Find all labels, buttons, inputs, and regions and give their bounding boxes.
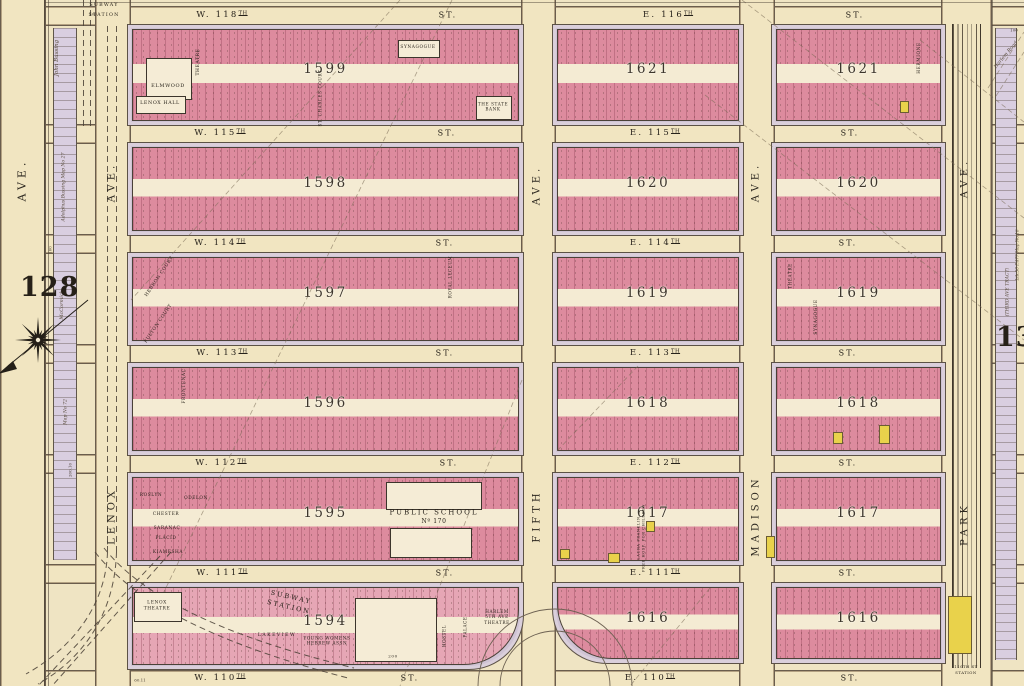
margin-note-harlem-road: Harlem Road [993,40,1019,70]
avenue-label-west-edge-ave-0: AVE. [16,159,29,202]
street-label-east-st-w-114th-e-114th: ST. [839,239,858,248]
plate-number-left: 128 [20,272,79,303]
avenue-label-park-ave-1: PARK [960,502,971,546]
street-label-east-w-118th-e-116th: E. 116TH [643,10,693,20]
ordinal-suffix: TH [671,348,680,354]
street-label-west-w-111th-e-111th: W. 111TH [196,568,247,578]
dimension-label: 100 [1010,28,1018,33]
avenue-label-park-ave-0: AVE. [960,158,971,198]
ordinal-suffix: TH [671,238,680,244]
street-label-east-st-w-118th-e-116th: ST. [846,11,865,20]
ordinal-suffix: TH [238,10,247,16]
ordinal-suffix: TH [236,673,245,679]
park-station-line2: STATION [946,670,986,676]
street-label-east-st-w-113th-e-113th: ST. [839,349,858,358]
street-label-east-st-w-110th-e-110th: ST. [841,674,860,683]
street-label-west-w-110th-e-110th: W. 110TH [194,673,245,683]
margin-note-lib-note: Lib.50 P.477 Map No.16 [1015,230,1020,281]
ordinal-suffix: TH [671,568,680,574]
street-label-east-w-111th-e-111th: E. 111TH [630,568,680,578]
ordinal-suffix: TH [671,458,680,464]
dimension-label: 200.10 [68,463,73,477]
street-label-west-st-w-115th-e-115th: ST. [438,129,457,138]
street-label-west-st-w-112th-e-112th: ST. [440,459,459,468]
street-label-east-w-112th-e-112th: E. 112TH [630,458,680,468]
street-label-east-st-w-112th-e-112th: ST. [839,459,858,468]
street-label-west-st-w-114th-e-114th: ST. [436,239,455,248]
subway-station-line2: STATION [84,11,124,21]
ordinal-suffix: TH [237,458,246,464]
ordinal-suffix: TH [666,673,675,679]
avenue-label-fifth-ave-0: AVE. [532,165,543,205]
street-label-east-st-w-115th-e-115th: ST. [841,129,860,138]
labels-layer: W. 118THST.E. 116THST.W. 115THST.E. 115T… [0,0,1024,686]
street-label-west-st-w-118th-e-116th: ST. [439,11,458,20]
street-label-east-w-115th-e-115th: E. 115TH [630,128,680,138]
street-label-east-st-w-111th-e-111th: ST. [839,569,858,578]
subway-station-line1: SUBWAY [84,1,124,11]
margin-note-john-bussing: John Bussing [54,40,60,76]
margin-note-map-no-72: Map No 72 [64,399,69,425]
street-label-west-w-112th-e-112th: W. 112TH [195,458,246,468]
street-label-east-w-113th-e-113th: E. 113TH [630,348,680,358]
atlas-map-plate: 1599162116211598162016201597161916191596… [0,0,1024,686]
subway-station-label-top: SUBWAY STATION [84,1,124,21]
street-label-west-w-114th-e-114th: W. 114TH [194,238,245,248]
street-label-east-w-114th-e-114th: E. 114TH [630,238,680,248]
ordinal-suffix: TH [684,10,693,16]
avenue-label-madison-ave-0: AVE. [751,162,762,202]
park-ave-station-label: 110TH ST STATION [946,664,986,677]
street-label-west-w-115th-e-115th: W. 115TH [194,128,245,138]
avenue-label-fifth-ave-1: FIFTH [532,489,543,542]
avenue-label-lenox-ave-1: LENOX [107,487,118,545]
avenue-label-madison-ave-1: MADISON [751,475,762,556]
ordinal-suffix: TH [238,568,247,574]
plate-number-right: 130 [996,322,1024,353]
street-label-west-st-w-111th-e-111th: ST. [436,569,455,578]
street-label-west-w-118th-e-116th: W. 118TH [196,10,247,20]
margin-note-third-ave-tract: (THIRD AVE TRACT) [1006,268,1011,317]
ordinal-suffix: TH [236,238,245,244]
street-label-west-w-113th-e-113th: W. 113TH [196,348,247,358]
street-label-west-st-w-110th-e-110th: ST. [401,674,420,683]
ordinal-suffix: TH [671,128,680,134]
street-label-east-w-110th-e-110th: E. 110TH [625,673,675,683]
margin-note-adolphus-bussing: Adolphus Bussing Map No 27 [62,153,67,222]
dimension-label: 60.11 [134,678,145,683]
dimension-label: 100 [48,246,53,254]
ordinal-suffix: TH [236,128,245,134]
ordinal-suffix: TH [238,348,247,354]
avenue-label-lenox-ave-0: AVE. [107,162,118,202]
street-label-west-st-w-113th-e-113th: ST. [436,349,455,358]
